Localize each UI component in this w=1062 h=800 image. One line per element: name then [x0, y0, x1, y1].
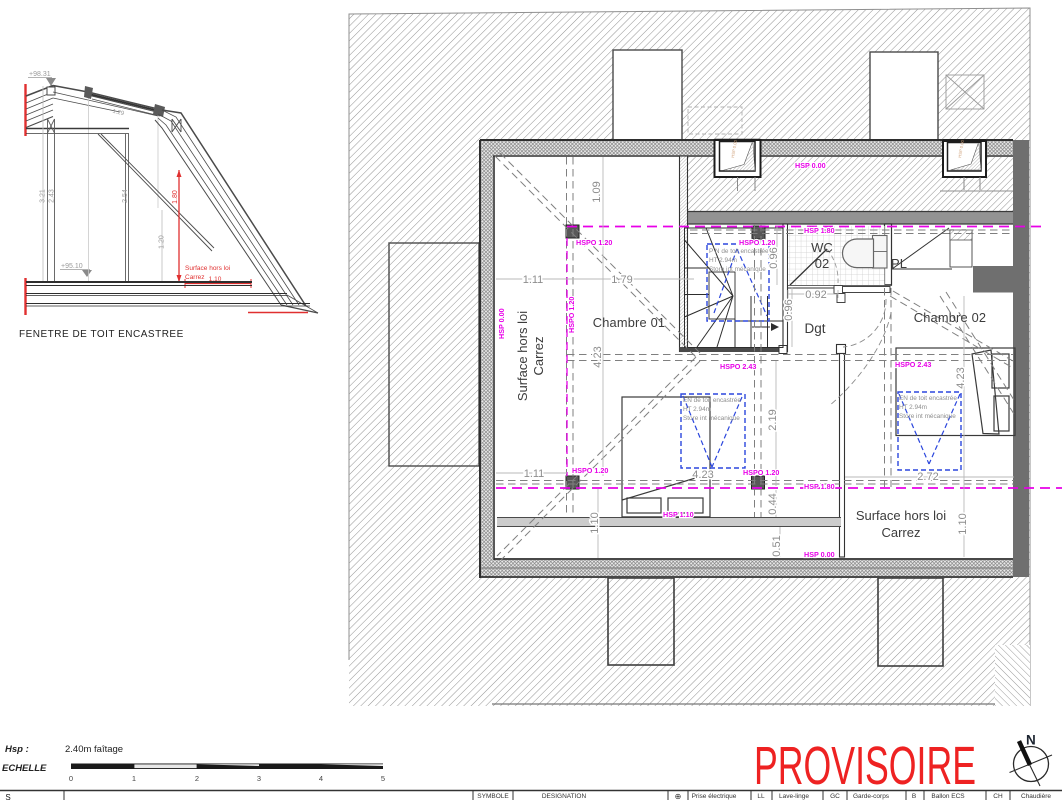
svg-text:HSPO 1.20: HSPO 1.20: [572, 466, 608, 475]
svg-text:HSPO 1.20: HSPO 1.20: [576, 238, 612, 247]
svg-text:HT 2.94m: HT 2.94m: [709, 257, 737, 264]
svg-text:Garde-corps: Garde-corps: [853, 793, 890, 800]
svg-text:SYMBOLE: SYMBOLE: [477, 793, 509, 800]
svg-text:0: 0: [69, 774, 73, 783]
svg-text:0.44: 0.44: [767, 493, 779, 514]
svg-text:5: 5: [381, 774, 385, 783]
svg-text:HSP 0.00: HSP 0.00: [804, 550, 835, 559]
svg-text:4.23: 4.23: [592, 346, 604, 367]
svg-text:Surface hors loi: Surface hors loi: [856, 508, 946, 523]
svg-text:HSPO 2.43: HSPO 2.43: [720, 362, 756, 371]
svg-text:LL: LL: [757, 793, 765, 800]
svg-text:Chambre 02: Chambre 02: [914, 310, 986, 325]
svg-text:EN de toit encastrée: EN de toit encastrée: [899, 395, 957, 402]
svg-text:3: 3: [257, 774, 261, 783]
svg-text:4: 4: [319, 774, 323, 783]
svg-text:EN de toit encastrée: EN de toit encastrée: [683, 397, 741, 404]
svg-text:1.11: 1.11: [524, 468, 545, 480]
svg-text:B: B: [912, 793, 916, 800]
svg-text:Chaudière: Chaudière: [1021, 793, 1051, 800]
svg-text:1.10: 1.10: [957, 513, 969, 534]
svg-text:4.23: 4.23: [692, 469, 713, 481]
svg-text:2.43: 2.43: [49, 189, 56, 203]
svg-text:3.21: 3.21: [40, 189, 47, 203]
svg-text:2: 2: [195, 774, 199, 783]
svg-text:HSPO 1.20: HSPO 1.20: [739, 238, 775, 247]
svg-text:Dgt: Dgt: [804, 321, 825, 336]
svg-text:1: 1: [132, 774, 136, 783]
svg-text:Carrez: Carrez: [881, 525, 920, 540]
svg-text:0.51: 0.51: [771, 535, 783, 556]
svg-text:HSPO 2.43: HSPO 2.43: [895, 360, 931, 369]
svg-text:02: 02: [815, 256, 829, 271]
svg-text:⊕: ⊕: [675, 792, 682, 800]
svg-text:+98.31: +98.31: [29, 71, 51, 78]
svg-text:1.79: 1.79: [611, 274, 632, 286]
svg-text:Lave-linge: Lave-linge: [779, 793, 809, 800]
svg-text:HSPO 1.20: HSPO 1.20: [567, 297, 576, 333]
svg-text:2.54: 2.54: [122, 189, 129, 203]
svg-text:Store int mécanique: Store int mécanique: [709, 266, 766, 273]
svg-text:GC: GC: [830, 793, 840, 800]
svg-text:WC: WC: [811, 240, 833, 255]
svg-text:N: N: [1026, 733, 1036, 748]
svg-text:Chambre 01: Chambre 01: [593, 315, 665, 330]
svg-text:HT 2.94m: HT 2.94m: [899, 404, 927, 411]
svg-text:CH: CH: [993, 793, 1003, 800]
svg-text:HSP 0.00: HSP 0.00: [795, 161, 826, 170]
svg-text:Hsp :: Hsp :: [5, 744, 29, 755]
svg-text:HSPO 1.20: HSPO 1.20: [743, 468, 779, 477]
svg-text:P N de toit encastrée: P N de toit encastrée: [709, 248, 769, 255]
svg-text:2.40m faîtage: 2.40m faîtage: [65, 744, 123, 755]
svg-text:Ballon ECS: Ballon ECS: [931, 793, 965, 800]
svg-text:0.96: 0.96: [783, 299, 795, 320]
svg-text:1.20: 1.20: [159, 235, 166, 249]
svg-text:1.09: 1.09: [591, 181, 603, 202]
svg-text:Carrez: Carrez: [185, 274, 205, 281]
svg-text:HSP 1.80: HSP 1.80: [804, 226, 835, 235]
svg-text:Prise électrique: Prise électrique: [692, 793, 737, 800]
svg-text:Carrez: Carrez: [531, 336, 546, 375]
svg-text:HSP 1.80: HSP 1.80: [804, 482, 835, 491]
svg-text:DESIGNATION: DESIGNATION: [542, 793, 587, 800]
svg-text:2.19: 2.19: [767, 409, 779, 430]
svg-text:1.80: 1.80: [172, 190, 179, 204]
svg-text:1.10: 1.10: [589, 512, 601, 533]
svg-text:HT 2.94m: HT 2.94m: [683, 406, 711, 413]
svg-text:Store int mécanique: Store int mécanique: [683, 415, 740, 422]
svg-text:PL: PL: [891, 256, 907, 271]
svg-text:Surface hors loi: Surface hors loi: [515, 311, 530, 401]
svg-text:Store int mécanique: Store int mécanique: [899, 413, 956, 420]
svg-text:1.11: 1.11: [523, 274, 544, 286]
svg-text:4.23: 4.23: [955, 367, 967, 388]
svg-text:0.92: 0.92: [805, 289, 826, 301]
svg-text:ECHELLE: ECHELLE: [2, 763, 47, 774]
svg-text:+95.10: +95.10: [61, 263, 83, 270]
svg-text:Surface hors loi: Surface hors loi: [185, 265, 230, 272]
svg-text:0.96: 0.96: [768, 247, 780, 268]
svg-text:HSP 0.00: HSP 0.00: [497, 308, 506, 339]
svg-text:2.72: 2.72: [917, 471, 938, 483]
svg-text:S: S: [5, 793, 10, 800]
svg-text:HSP 1.10: HSP 1.10: [663, 510, 694, 519]
svg-text:FENETRE DE TOIT ENCASTREE: FENETRE DE TOIT ENCASTREE: [19, 329, 184, 340]
svg-text:PROVISOIRE: PROVISOIRE: [754, 737, 976, 796]
